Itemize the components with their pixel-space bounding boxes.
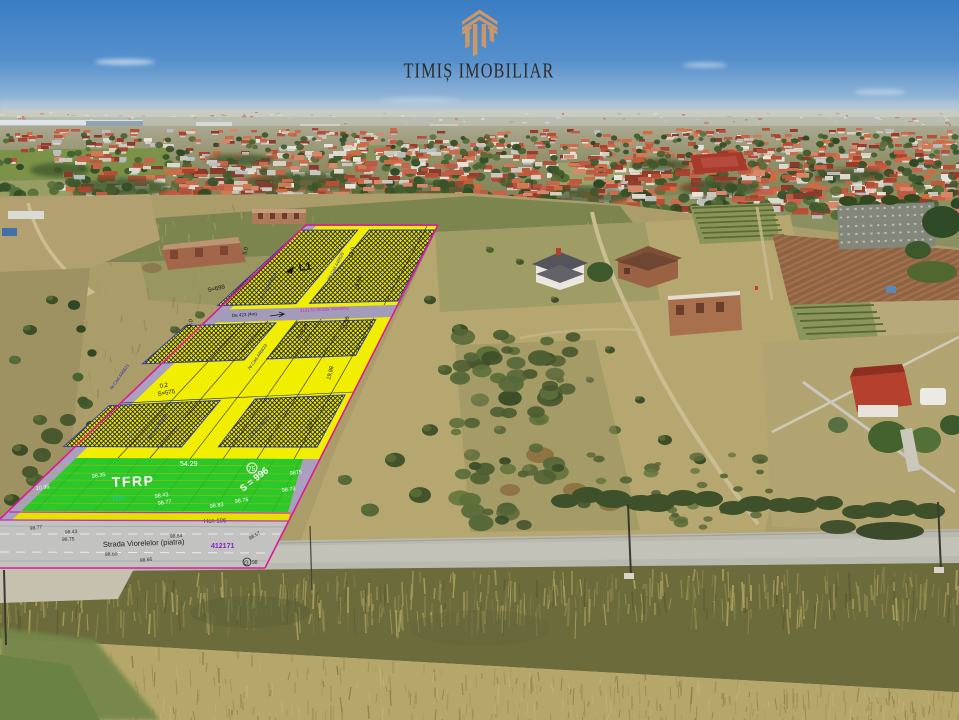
svg-text:Hcn 106: Hcn 106 — [204, 518, 227, 525]
svg-text:98.43: 98.43 — [65, 529, 78, 536]
svg-text:98.75: 98.75 — [62, 536, 75, 543]
svg-text:TF97: TF97 — [112, 496, 125, 502]
svg-text:TIMIȘ IMOBILIAR: TIMIȘ IMOBILIAR — [404, 59, 555, 83]
svg-text:54.29: 54.29 — [180, 461, 198, 468]
svg-text:98: 98 — [252, 560, 258, 566]
svg-text:98.60: 98.60 — [105, 551, 118, 558]
svg-text:98.64: 98.64 — [170, 533, 183, 540]
svg-text:G: G — [244, 561, 249, 567]
svg-text:TFRP: TFRP — [112, 473, 155, 490]
svg-text:L1: L1 — [298, 260, 312, 274]
svg-text:412171: 412171 — [211, 543, 234, 550]
svg-text:75: 75 — [248, 466, 256, 473]
